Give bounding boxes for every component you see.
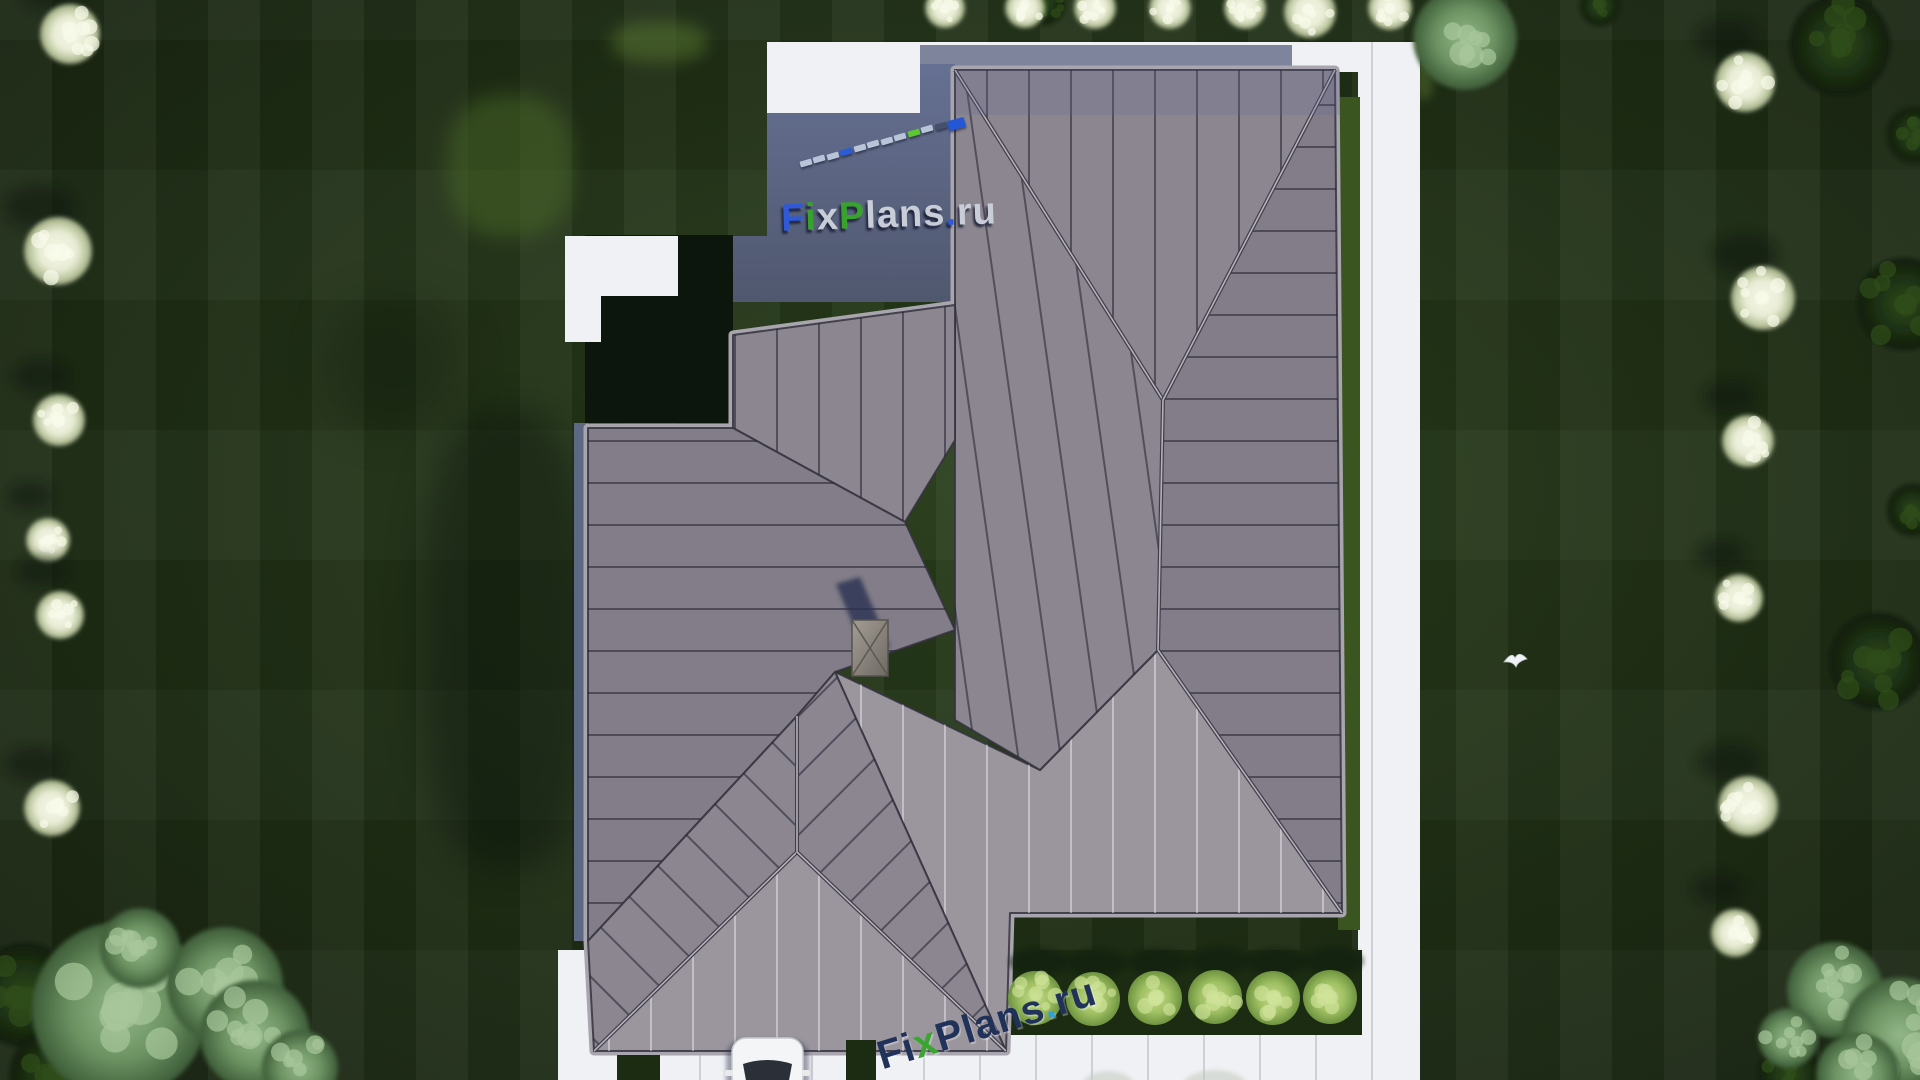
bird xyxy=(1504,654,1527,667)
car-windshield xyxy=(743,1060,792,1080)
tree xyxy=(1692,874,1759,957)
entrance-walk xyxy=(767,42,920,115)
watermark-letter: P xyxy=(838,195,866,238)
bush xyxy=(1303,970,1357,1024)
tree xyxy=(1758,1008,1818,1068)
tree xyxy=(1887,107,1920,163)
tree xyxy=(1413,0,1517,90)
side-walk xyxy=(565,236,678,296)
driveway-grass-strip xyxy=(617,1055,660,1080)
watermark-letter: x xyxy=(816,196,840,239)
tree xyxy=(17,556,84,639)
car xyxy=(725,1038,810,1080)
roof-north-shade xyxy=(955,70,1340,115)
tree xyxy=(1696,19,1776,112)
tree xyxy=(21,0,101,64)
watermark-letter: ru xyxy=(956,190,997,233)
tree xyxy=(1711,234,1795,330)
east-path-slabs xyxy=(1358,42,1420,1080)
tree xyxy=(1887,484,1920,536)
tree xyxy=(4,186,92,285)
car-mirror xyxy=(802,1070,810,1076)
tree xyxy=(1699,743,1779,836)
tree xyxy=(1580,0,1620,26)
site-plan-graphics xyxy=(0,0,1920,1080)
side-walk xyxy=(565,296,601,342)
tree xyxy=(1265,0,1336,38)
site-render: FixPlans.ru FixPlans.ru xyxy=(0,0,1920,1080)
tree xyxy=(1703,381,1774,467)
tree xyxy=(906,0,965,28)
tree xyxy=(5,747,80,836)
tree xyxy=(1830,613,1920,710)
tree xyxy=(7,482,70,562)
driveway-grass-strip xyxy=(846,1040,876,1080)
tree xyxy=(986,0,1045,28)
tree xyxy=(14,360,85,446)
tree xyxy=(1696,539,1763,622)
fixplans-watermark-top: FixPlans.ru xyxy=(780,190,997,241)
tree xyxy=(1858,258,1920,350)
watermark-letter: lans xyxy=(865,192,946,237)
tree xyxy=(1205,0,1266,29)
watermark-letter: F xyxy=(780,197,806,240)
bush xyxy=(1246,971,1300,1025)
bush xyxy=(1128,971,1182,1025)
tree xyxy=(100,908,180,988)
car-mirror xyxy=(725,1070,733,1076)
tree xyxy=(1349,0,1412,30)
tree xyxy=(1790,0,1890,95)
tree xyxy=(1130,0,1191,29)
